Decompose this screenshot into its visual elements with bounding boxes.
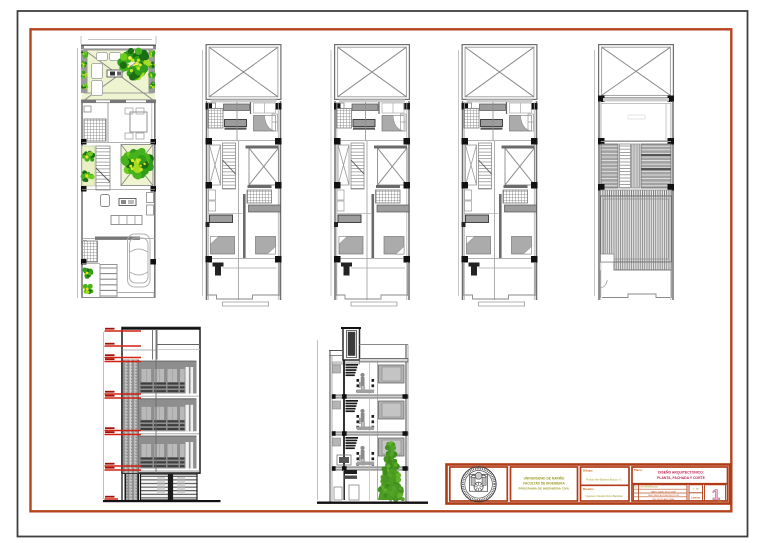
svg-text:FACULTAD DE INGENIERIA: FACULTAD DE INGENIERIA <box>523 481 565 485</box>
svg-text:1 : 75: 1 : 75 <box>692 488 699 491</box>
svg-text:A3: A3 <box>718 499 722 503</box>
svg-text:REV DIB PLANO FINAL: REV DIB PLANO FINAL <box>652 498 675 501</box>
svg-text:Dibujo:: Dibujo: <box>583 468 593 472</box>
svg-text:UNIVERSIDAD DE NARIÑO: UNIVERSIDAD DE NARIÑO <box>524 475 565 480</box>
svg-text:Freddy Abel Bolanos Bacca y G.: Freddy Abel Bolanos Bacca y G. <box>586 479 622 482</box>
svg-text:REV1 REV2 A CONSTRUCCION: REV1 REV2 A CONSTRUCCION <box>648 494 679 497</box>
svg-text:PLANTA, FACHADA Y CORTE: PLANTA, FACHADA Y CORTE <box>657 476 705 480</box>
svg-text:Plano:: Plano: <box>634 468 643 472</box>
svg-text:Diseño:: Diseño: <box>583 487 594 491</box>
svg-text:Lamina: Lamina <box>691 496 700 499</box>
svg-text:Ingeniero Claudio Romo Bastida: Ingeniero Claudio Romo Bastidas <box>585 495 623 498</box>
svg-text:PROGRAMA DE INGENIERIA CIVIL: PROGRAMA DE INGENIERIA CIVIL <box>519 486 570 490</box>
svg-text:DISEÑO ARQUITECTONICO:: DISEÑO ARQUITECTONICO: <box>658 470 704 475</box>
svg-text:MAYO JUNIO JULIO 2008: MAYO JUNIO JULIO 2008 <box>651 490 676 493</box>
svg-text:No. Fecha Modificacion: No. Fecha Modificacion <box>634 487 659 489</box>
